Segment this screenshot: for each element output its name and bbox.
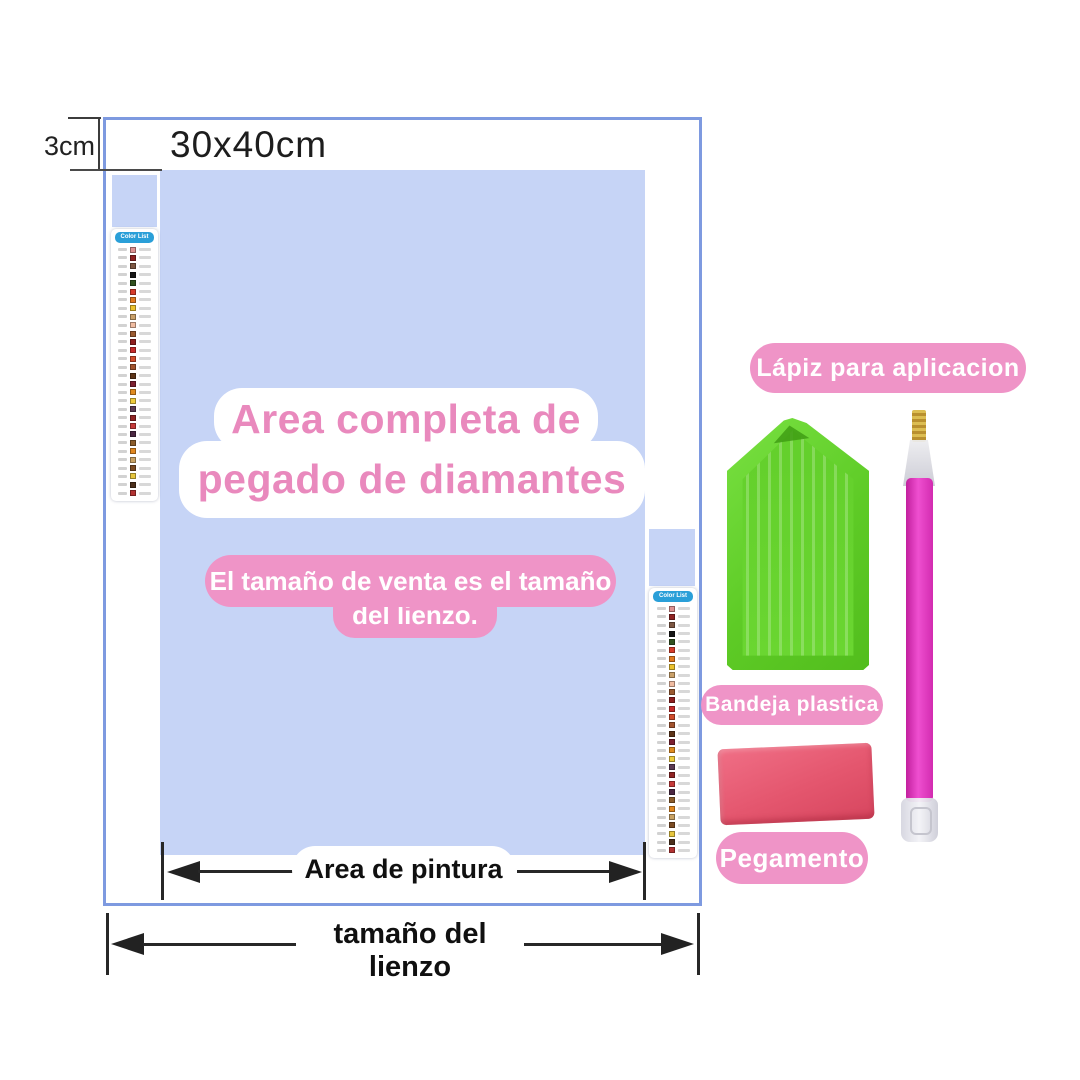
color-swatch	[130, 373, 136, 379]
legend-row	[113, 490, 156, 497]
paint-area-line-left	[198, 870, 295, 873]
paint-area-label: Area de pintura	[292, 846, 515, 893]
margin-label: 3cm	[44, 131, 95, 162]
paint-area-line-right	[517, 870, 609, 873]
callout-line1: Area completa de	[214, 388, 598, 450]
canvas-size-title: 30x40cm	[170, 124, 327, 166]
legend-row	[651, 605, 695, 612]
legend-row	[113, 254, 156, 261]
legend-row	[651, 705, 695, 712]
color-swatch	[130, 431, 136, 437]
margin-tick-top	[68, 117, 101, 119]
color-swatch	[669, 764, 675, 770]
color-swatch	[130, 398, 136, 404]
legend-row	[651, 722, 695, 729]
margin-tick-bottom	[70, 169, 162, 171]
color-swatch	[130, 482, 136, 488]
legend-row	[651, 680, 695, 687]
glue-label-pill: Pegamento	[716, 832, 868, 884]
color-swatch	[130, 381, 136, 387]
canvas-size-label: tamaño del lienzo	[298, 918, 522, 984]
legend-row	[651, 839, 695, 846]
color-swatch	[669, 689, 675, 695]
legend-row	[113, 330, 156, 337]
legend-row	[651, 663, 695, 670]
paint-area-end-bar-right	[643, 842, 646, 900]
paint-area-end-bar-left	[161, 842, 164, 900]
tray-label-pill: Bandeja plastica	[701, 685, 883, 725]
color-swatch	[669, 814, 675, 820]
color-swatch	[669, 772, 675, 778]
legend-row	[651, 847, 695, 854]
color-swatch	[130, 289, 136, 295]
legend-row	[651, 630, 695, 637]
legend-row	[651, 613, 695, 620]
color-swatch	[669, 739, 675, 745]
legend-row	[651, 688, 695, 695]
legend-row	[651, 713, 695, 720]
canvas-size-line-left	[143, 943, 296, 946]
color-swatch	[130, 356, 136, 362]
color-swatch	[669, 781, 675, 787]
legend-row	[113, 288, 156, 295]
legend-row	[113, 347, 156, 354]
legend-row	[113, 397, 156, 404]
color-swatch	[130, 465, 136, 471]
glue-wax-image	[717, 743, 874, 826]
color-swatch	[669, 756, 675, 762]
legend-row	[113, 338, 156, 345]
legend-row	[113, 372, 156, 379]
color-swatch	[130, 457, 136, 463]
color-swatch	[130, 263, 136, 269]
legend-row	[113, 263, 156, 270]
legend-row	[113, 423, 156, 430]
paint-area-label-text: Area de pintura	[304, 854, 502, 885]
color-swatch	[130, 322, 136, 328]
legend-row	[113, 389, 156, 396]
legend-row	[651, 647, 695, 654]
legend-row	[651, 755, 695, 762]
color-swatch	[130, 305, 136, 311]
color-swatch	[669, 714, 675, 720]
color-swatch	[669, 839, 675, 845]
callout-line2: pegado de diamantes	[179, 441, 645, 518]
color-swatch	[669, 806, 675, 812]
arrow-right-icon	[609, 861, 642, 883]
legend-row	[113, 406, 156, 413]
color-swatch	[130, 297, 136, 303]
color-swatch	[669, 614, 675, 620]
color-swatch	[130, 406, 136, 412]
legend-row	[651, 772, 695, 779]
legend-row	[651, 697, 695, 704]
arrow-left-icon	[111, 933, 144, 955]
tray-floor	[735, 418, 861, 663]
legend-row	[651, 780, 695, 787]
color-swatch	[669, 831, 675, 837]
legend-row	[651, 805, 695, 812]
color-swatch	[130, 389, 136, 395]
color-swatch	[130, 247, 136, 253]
color-swatch	[669, 639, 675, 645]
legend-row	[113, 271, 156, 278]
legend-row	[113, 355, 156, 362]
color-swatch	[130, 440, 136, 446]
color-swatch	[669, 631, 675, 637]
color-swatch	[130, 272, 136, 278]
color-swatch	[130, 255, 136, 261]
color-swatch	[669, 822, 675, 828]
legend-title: Color List	[653, 591, 693, 602]
legend-row	[651, 789, 695, 796]
legend-row	[113, 313, 156, 320]
color-swatch	[130, 415, 136, 421]
color-swatch	[669, 681, 675, 687]
color-swatch	[669, 722, 675, 728]
legend-row	[651, 730, 695, 737]
color-swatch	[669, 747, 675, 753]
legend-row	[113, 465, 156, 472]
color-swatch	[130, 280, 136, 286]
legend-row	[651, 830, 695, 837]
legend-row	[113, 381, 156, 388]
pen-cap	[901, 798, 938, 842]
color-swatch	[130, 339, 136, 345]
margin-dimension-line	[98, 118, 100, 171]
legend-row	[651, 814, 695, 821]
arrow-left-icon	[167, 861, 200, 883]
pen-metal-tip	[912, 410, 926, 442]
legend-row	[113, 456, 156, 463]
legend-row	[113, 280, 156, 287]
color-swatch	[130, 473, 136, 479]
plastic-tray-image	[727, 418, 869, 670]
color-swatch	[669, 606, 675, 612]
legend-row	[113, 481, 156, 488]
color-swatch	[130, 347, 136, 353]
canvas-size-end-bar-left	[106, 913, 109, 975]
color-swatch	[669, 622, 675, 628]
color-swatch	[669, 797, 675, 803]
color-swatch	[669, 731, 675, 737]
color-swatch	[130, 314, 136, 320]
color-swatch	[669, 789, 675, 795]
legend-row	[113, 448, 156, 455]
color-swatch	[669, 656, 675, 662]
legend-row	[113, 414, 156, 421]
color-swatch	[130, 331, 136, 337]
legend-row	[113, 439, 156, 446]
legend-row	[113, 322, 156, 329]
color-legend-left: Color List	[111, 229, 158, 501]
legend-patch-left	[112, 175, 157, 227]
legend-row	[113, 296, 156, 303]
legend-title: Color List	[115, 232, 154, 243]
color-swatch	[130, 364, 136, 370]
legend-row	[651, 739, 695, 746]
color-swatch	[669, 847, 675, 853]
legend-row	[113, 246, 156, 253]
pen-label-pill: Lápiz para aplicacion	[750, 343, 1026, 393]
color-swatch	[669, 672, 675, 678]
color-swatch	[130, 490, 136, 496]
note-badge-line1: El tamaño de venta es el tamaño	[205, 555, 616, 607]
color-swatch	[130, 423, 136, 429]
color-legend-right: Color List	[649, 588, 697, 858]
color-swatch	[669, 697, 675, 703]
color-swatch	[669, 706, 675, 712]
legend-row	[113, 364, 156, 371]
applicator-pen-image	[899, 408, 939, 846]
legend-row	[651, 638, 695, 645]
legend-row	[651, 622, 695, 629]
legend-row	[651, 822, 695, 829]
pen-body	[906, 478, 933, 802]
color-swatch	[130, 448, 136, 454]
legend-row	[651, 672, 695, 679]
arrow-right-icon	[661, 933, 694, 955]
canvas-size-line-right	[524, 943, 662, 946]
legend-row	[651, 655, 695, 662]
legend-row	[113, 431, 156, 438]
canvas-size-end-bar-right	[697, 913, 700, 975]
color-swatch	[669, 647, 675, 653]
diamond-painting-infographic: 30x40cm 3cm Color List Color List pegado…	[0, 0, 1080, 1080]
legend-patch-right	[649, 529, 695, 586]
legend-row	[651, 747, 695, 754]
legend-row	[651, 797, 695, 804]
legend-row	[113, 473, 156, 480]
legend-row	[651, 764, 695, 771]
legend-row	[113, 305, 156, 312]
color-swatch	[669, 664, 675, 670]
